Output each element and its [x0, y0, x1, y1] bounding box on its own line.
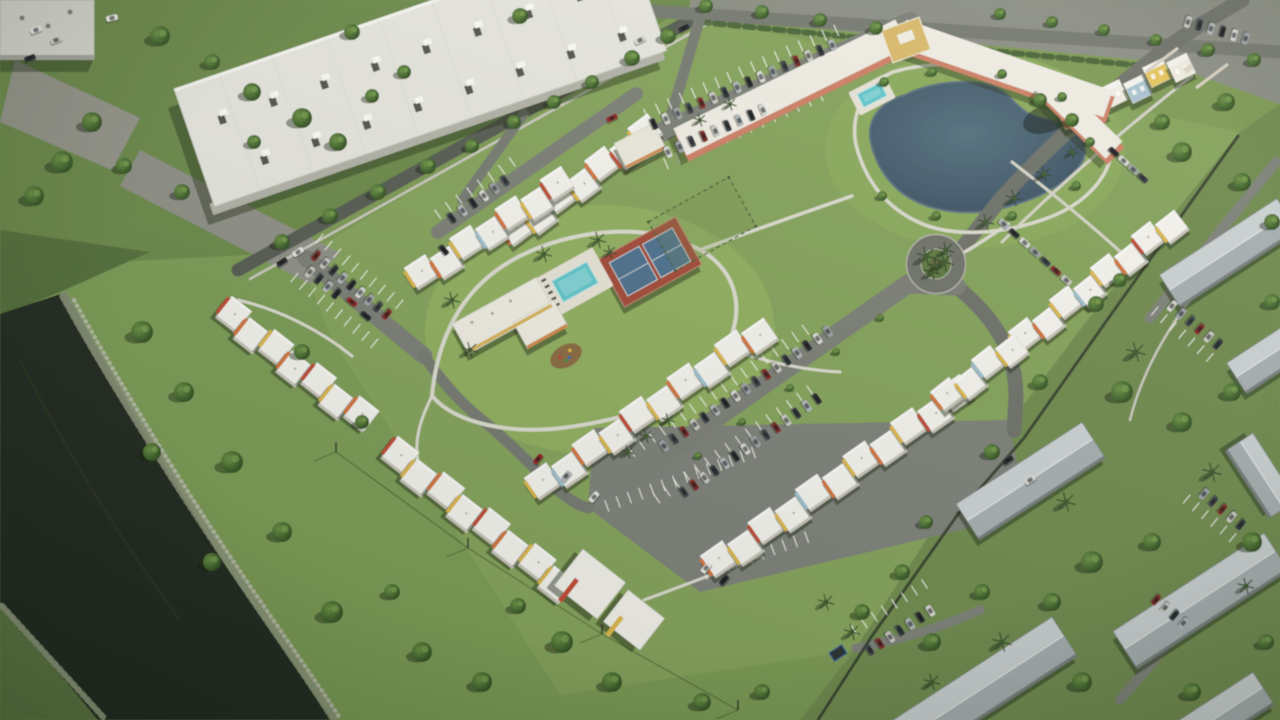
tree: [292, 108, 312, 128]
tree-highlight: [1091, 555, 1099, 563]
tree: [1217, 93, 1235, 111]
tree-highlight: [61, 155, 69, 163]
tree: [694, 452, 702, 460]
palm-crown: [984, 220, 989, 225]
tree: [1007, 211, 1017, 221]
tree: [131, 321, 153, 343]
tree: [512, 8, 528, 24]
tree-highlight: [1000, 10, 1004, 14]
tree: [1264, 294, 1280, 310]
tree-highlight: [282, 526, 289, 533]
tree: [294, 344, 310, 360]
tree-highlight: [884, 79, 888, 83]
tree: [397, 65, 411, 79]
tree-highlight: [282, 237, 288, 243]
tree: [877, 191, 887, 201]
tree-highlight: [92, 116, 99, 123]
tree-highlight: [1040, 95, 1045, 100]
tree-highlight: [932, 69, 936, 73]
tree-highlight: [422, 646, 429, 653]
tree-highlight: [926, 517, 931, 522]
tree-highlight: [1232, 386, 1238, 392]
tree: [1111, 381, 1133, 403]
tree-highlight: [302, 347, 308, 353]
palm-crown: [1070, 150, 1074, 154]
tree: [1057, 92, 1067, 102]
tree: [322, 208, 338, 224]
tree: [1043, 593, 1061, 611]
tree: [660, 28, 676, 44]
tree: [321, 601, 343, 623]
tree-highlight: [932, 636, 938, 642]
tree: [786, 384, 794, 392]
palm-crown: [1209, 469, 1215, 475]
tree: [465, 139, 479, 153]
palm-crown: [930, 680, 935, 685]
tree: [507, 115, 521, 129]
tree-highlight: [882, 193, 886, 197]
palm-crown: [644, 434, 648, 438]
tree: [1242, 532, 1262, 552]
tree: [247, 135, 261, 149]
tree-highlight: [1062, 94, 1066, 98]
palm-crown: [542, 252, 547, 257]
tree: [370, 184, 386, 200]
tree: [1264, 214, 1280, 230]
tree-highlight: [936, 213, 940, 217]
tree-highlight: [1096, 299, 1102, 305]
tree: [51, 151, 73, 173]
aerial-photo-scene: [0, 0, 1280, 720]
tree-highlight: [742, 419, 745, 422]
tree-highlight: [982, 587, 988, 593]
tree: [272, 522, 292, 542]
tree-highlight: [330, 211, 336, 217]
tree-highlight: [362, 417, 367, 422]
palm-crown: [450, 298, 455, 303]
tree: [1032, 374, 1048, 390]
tree: [174, 382, 194, 402]
tree-highlight: [836, 349, 839, 352]
tree-highlight: [706, 1, 711, 6]
tree: [365, 89, 379, 103]
tree-highlight: [1002, 71, 1006, 75]
tree: [997, 69, 1007, 79]
tree: [551, 631, 573, 653]
tree: [923, 633, 941, 651]
tree-highlight: [404, 67, 409, 72]
tree-highlight: [428, 161, 434, 167]
tree: [876, 314, 884, 322]
tree-highlight: [876, 23, 881, 28]
palm-crown: [596, 238, 601, 243]
tree: [82, 112, 102, 132]
tree: [1201, 43, 1215, 57]
tree: [1081, 551, 1103, 573]
building-shadow: [0, 58, 94, 72]
tree-highlight: [212, 556, 218, 562]
tree-highlight: [34, 190, 41, 197]
tree: [1072, 672, 1092, 692]
tree-highlight: [331, 605, 339, 613]
tree-highlight: [152, 446, 158, 452]
tree: [329, 133, 347, 151]
tree-highlight: [554, 97, 559, 102]
tree-highlight: [302, 112, 309, 119]
tree: [1065, 113, 1079, 127]
tree-highlight: [252, 86, 258, 92]
tree: [1085, 137, 1095, 147]
palm-crown: [1012, 196, 1017, 201]
tree-highlight: [1090, 139, 1094, 143]
tree-highlight: [338, 136, 344, 142]
tree-highlight: [702, 696, 708, 702]
tree: [1046, 16, 1058, 28]
tree: [931, 211, 941, 221]
rooftop-unit: [20, 16, 25, 21]
tree: [738, 418, 746, 426]
palm-crown: [626, 450, 630, 454]
tree: [384, 584, 400, 600]
tree: [602, 672, 622, 692]
tree-highlight: [182, 187, 188, 193]
tree: [974, 584, 990, 600]
tree: [755, 5, 769, 19]
tree-highlight: [378, 187, 384, 193]
building-roof: [0, 0, 94, 58]
tree-highlight: [862, 607, 868, 613]
tree: [854, 604, 870, 620]
scene-root: [0, 0, 1280, 720]
palm-crown: [850, 630, 855, 635]
tree-highlight: [1254, 55, 1259, 60]
tree-highlight: [1121, 385, 1129, 393]
tree-highlight: [632, 53, 638, 59]
tree: [143, 443, 161, 461]
tree-highlight: [1104, 26, 1108, 30]
tree-highlight: [160, 30, 167, 37]
tree: [24, 186, 44, 206]
tree-highlight: [1252, 536, 1259, 543]
tree: [221, 451, 243, 473]
tree: [412, 642, 432, 662]
tree-highlight: [514, 117, 519, 122]
tree-highlight: [1040, 377, 1046, 383]
tree: [894, 564, 910, 580]
tree-highlight: [1052, 596, 1058, 602]
palm-crown: [728, 102, 732, 106]
tree-highlight: [1012, 213, 1016, 217]
tree: [1113, 273, 1127, 287]
tree: [150, 26, 170, 46]
tree-highlight: [1272, 217, 1278, 223]
tree: [984, 444, 1000, 460]
tree: [1033, 93, 1047, 107]
palm-crown: [824, 600, 829, 605]
tree-highlight: [1226, 96, 1232, 102]
tree: [203, 553, 221, 571]
tree: [1172, 142, 1192, 162]
rooftop-unit: [46, 24, 51, 29]
tree: [1150, 34, 1162, 46]
tree-highlight: [1182, 146, 1189, 153]
tree-highlight: [762, 7, 767, 12]
tree: [1247, 53, 1261, 67]
tree-highlight: [1076, 183, 1080, 187]
tree-highlight: [212, 57, 218, 63]
tree-highlight: [1156, 36, 1160, 40]
palm-crown: [1133, 349, 1139, 355]
tree: [547, 95, 561, 109]
tree: [869, 21, 883, 35]
tree: [1143, 533, 1161, 551]
tree-highlight: [1072, 115, 1077, 120]
tree: [1233, 173, 1251, 191]
tree-highlight: [1242, 176, 1248, 182]
tree-highlight: [1266, 637, 1272, 643]
tree: [344, 24, 360, 40]
tree-highlight: [561, 635, 569, 643]
tree-highlight: [124, 161, 130, 167]
tree-highlight: [902, 567, 908, 573]
tree: [754, 684, 770, 700]
tree: [243, 83, 261, 101]
tree: [1183, 683, 1201, 701]
tree-highlight: [1052, 18, 1056, 22]
industrial-office-building: [0, 0, 94, 72]
tree: [813, 13, 827, 27]
tree-highlight: [392, 587, 398, 593]
tree: [510, 598, 526, 614]
tree-highlight: [1272, 297, 1278, 303]
tree-highlight: [1162, 117, 1168, 123]
aerial-photo-canvas: [0, 0, 1280, 720]
building-wall: [0, 55, 94, 60]
tree-highlight: [820, 15, 825, 20]
tree-highlight: [520, 11, 526, 17]
tree: [585, 75, 599, 89]
tree-highlight: [1120, 275, 1125, 280]
palm-crown: [1063, 499, 1069, 505]
tree-highlight: [352, 27, 358, 33]
tree-highlight: [372, 91, 377, 96]
tree: [1098, 24, 1110, 36]
tree-highlight: [698, 453, 701, 456]
palm-crown: [944, 248, 949, 253]
palm-crown: [1042, 172, 1047, 177]
tree: [116, 158, 132, 174]
rooftop-unit: [68, 10, 73, 15]
tree-highlight: [1082, 676, 1089, 683]
tree: [1172, 412, 1192, 432]
palm-crown: [698, 118, 702, 122]
tree-highlight: [1152, 536, 1158, 542]
tree-highlight: [254, 137, 259, 142]
tree: [204, 54, 220, 70]
tree-highlight: [184, 386, 191, 393]
tree: [994, 8, 1006, 20]
tree: [420, 158, 436, 174]
tree: [693, 693, 711, 711]
tree: [624, 50, 640, 66]
tree-highlight: [518, 601, 524, 607]
tree: [1071, 181, 1081, 191]
tree-highlight: [231, 455, 239, 463]
tree: [919, 515, 933, 529]
tree: [355, 415, 369, 429]
tree: [832, 348, 840, 356]
tree: [879, 77, 889, 87]
tree: [1223, 383, 1241, 401]
tree-highlight: [992, 447, 998, 453]
tree-highlight: [592, 77, 597, 82]
palm-crown: [1244, 584, 1249, 589]
palm-crown: [468, 348, 473, 353]
tree-highlight: [612, 676, 619, 683]
tree: [472, 672, 492, 692]
tree-highlight: [880, 315, 883, 318]
tree-highlight: [1192, 686, 1198, 692]
tree: [1258, 634, 1274, 650]
palm-crown: [934, 264, 938, 268]
tree-highlight: [668, 31, 674, 37]
palm-crown: [666, 418, 670, 422]
tree-highlight: [1182, 416, 1189, 423]
palm-crown: [923, 253, 929, 259]
tree-highlight: [1208, 45, 1213, 50]
tree-highlight: [790, 385, 793, 388]
tree-highlight: [141, 325, 149, 333]
tree-highlight: [482, 676, 489, 683]
tree: [1088, 296, 1104, 312]
tree: [1154, 114, 1170, 130]
tree-highlight: [472, 141, 477, 146]
tree: [174, 184, 190, 200]
palm-crown: [941, 259, 947, 265]
palm-crown: [608, 250, 612, 254]
tree-highlight: [762, 687, 768, 693]
palm-crown: [999, 639, 1005, 645]
tree: [927, 67, 937, 77]
tree: [274, 234, 290, 250]
